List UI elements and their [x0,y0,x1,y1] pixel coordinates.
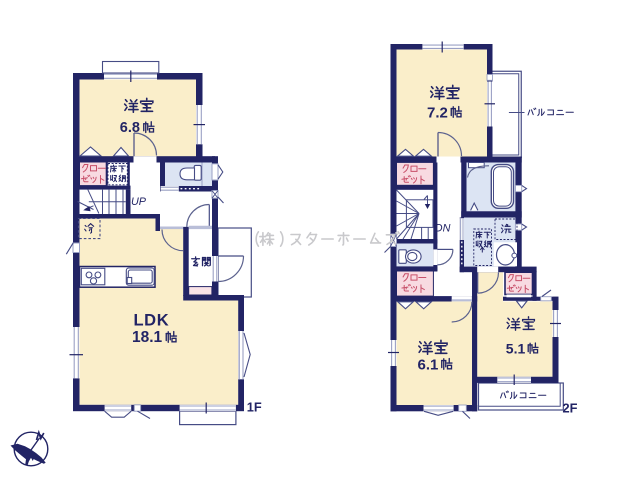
svg-text:18.1: 18.1 [132,329,163,346]
svg-text:1F: 1F [247,400,262,415]
svg-text:6.8: 6.8 [120,120,140,136]
svg-text:2F: 2F [563,401,578,416]
svg-text:UP: UP [131,196,147,208]
svg-text:7.2: 7.2 [427,105,448,122]
svg-text:LDK: LDK [134,312,170,330]
svg-text:6.1: 6.1 [418,357,439,374]
svg-text:DN: DN [435,223,451,235]
svg-text:5.1: 5.1 [506,341,526,357]
